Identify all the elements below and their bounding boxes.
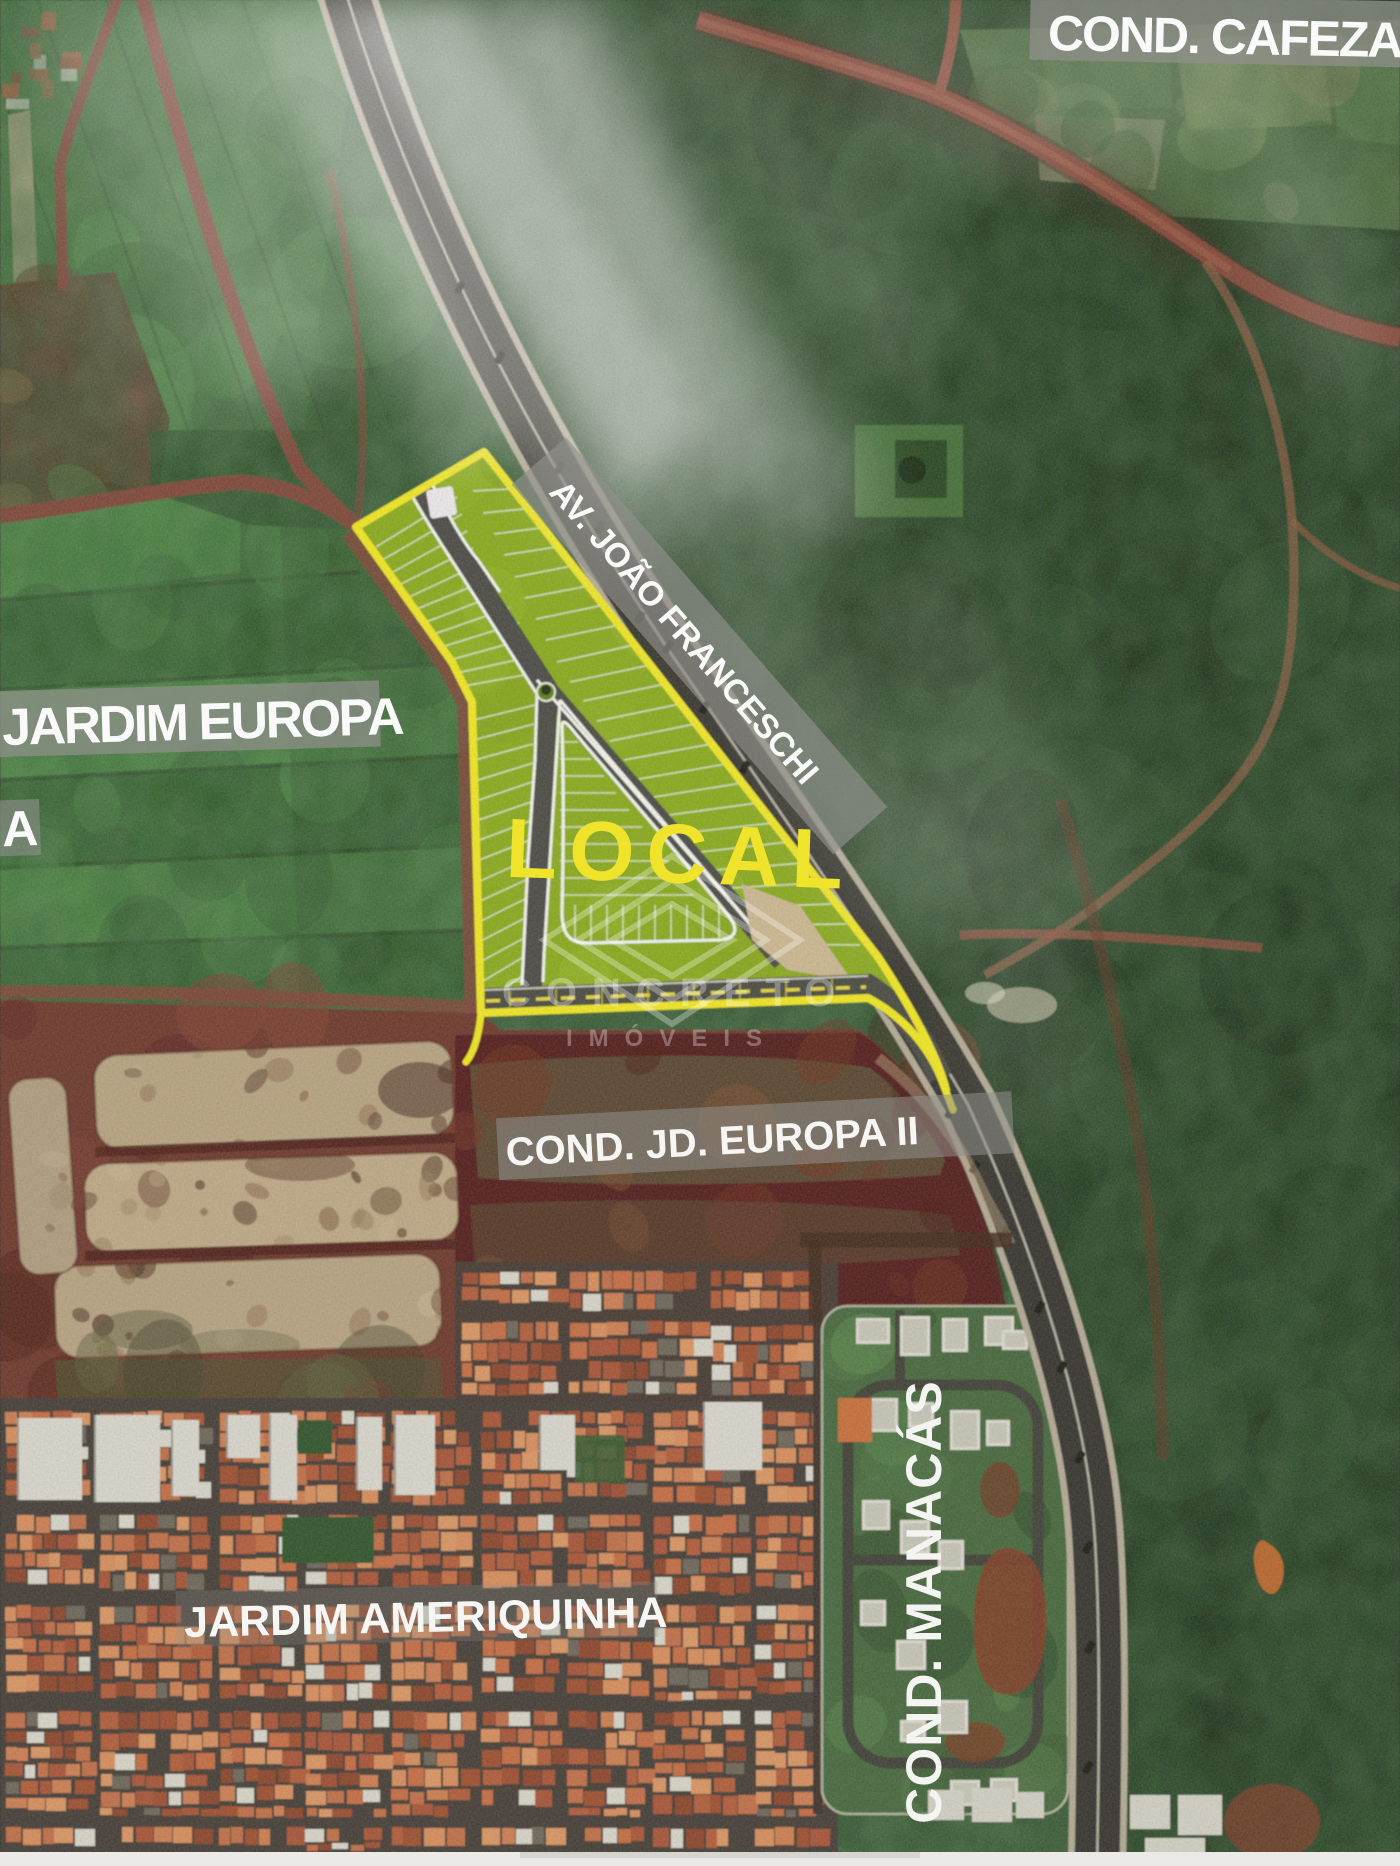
svg-text:COND. MANACÁS: COND. MANACÁS [896,1380,952,1824]
svg-text:LOCAL: LOCAL [504,801,856,907]
svg-text:A: A [1,800,39,857]
svg-text:JARDIM AMERIQUINHA: JARDIM AMERIQUINHA [184,1589,668,1647]
svg-text:COND. CAFEZAL: COND. CAFEZAL [1047,5,1400,69]
svg-text:IMÓVEIS: IMÓVEIS [566,1024,778,1052]
svg-text:CONCRETO: CONCRETO [502,971,850,1015]
svg-text:JARDIM EUROPA: JARDIM EUROPA [1,688,404,757]
